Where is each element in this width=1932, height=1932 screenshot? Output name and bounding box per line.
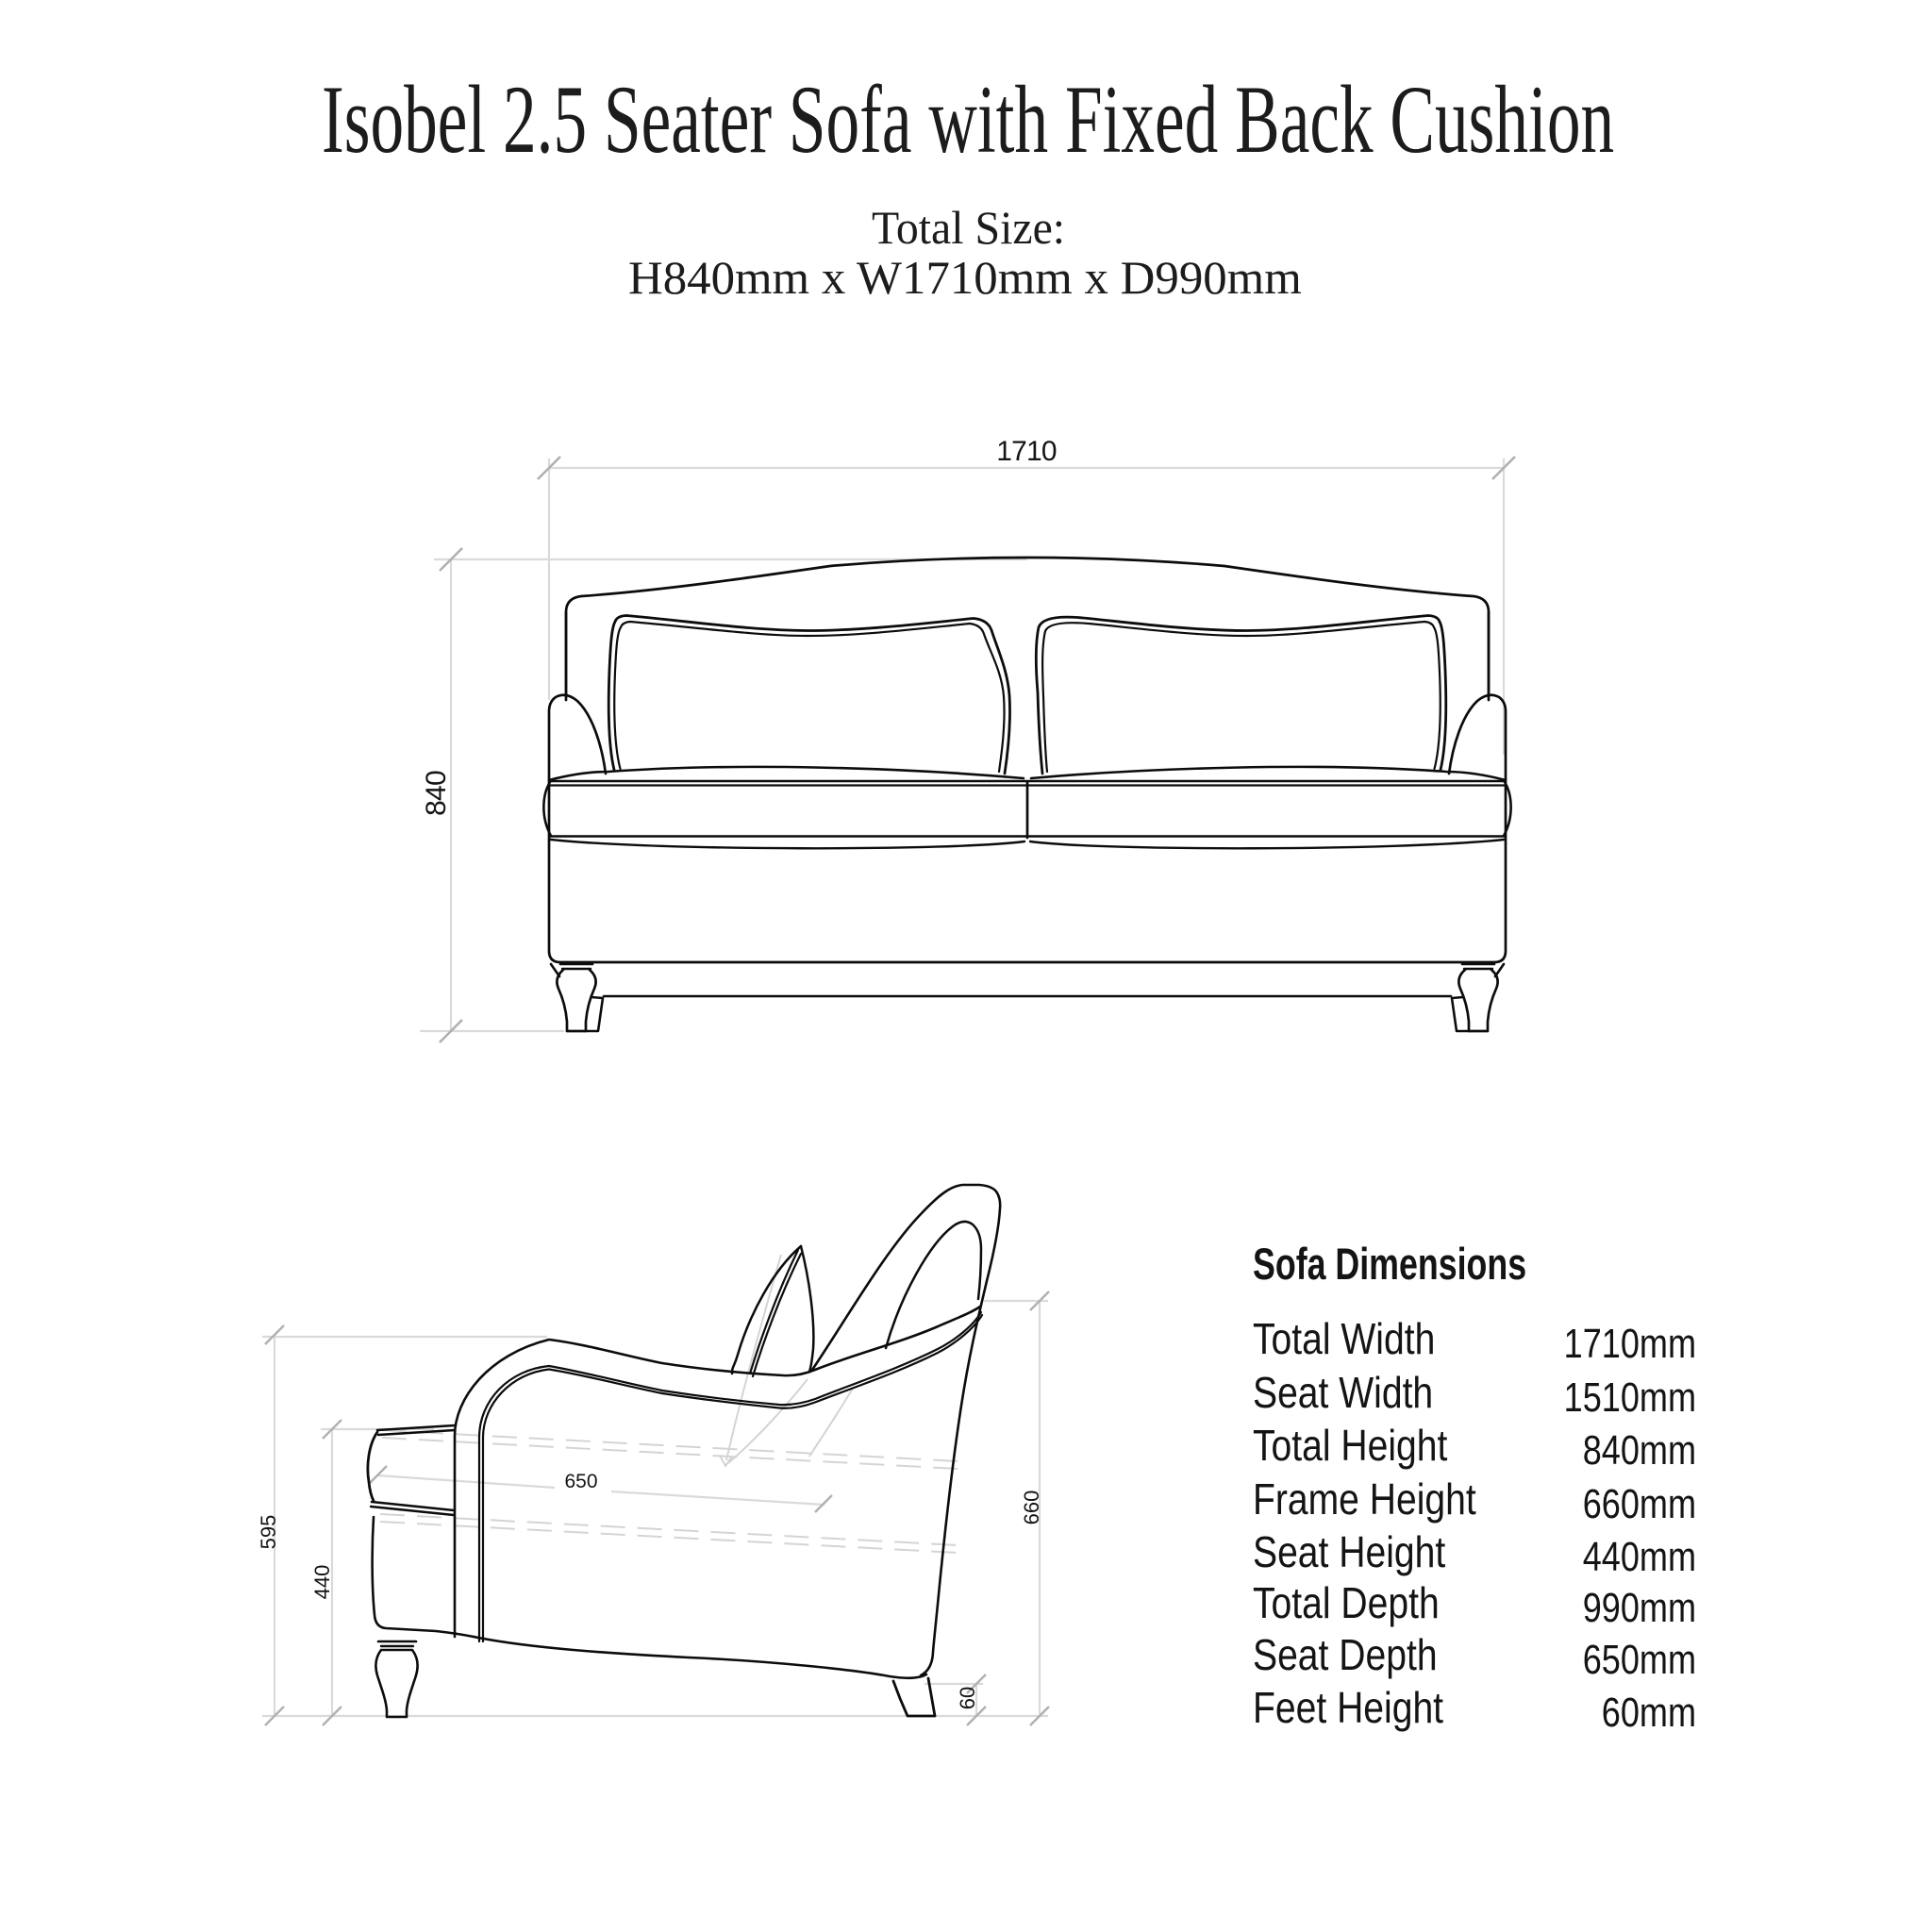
svg-text:Seat Height: Seat Height <box>1253 1528 1445 1577</box>
svg-text:440: 440 <box>310 1565 334 1600</box>
svg-text:Feet Height: Feet Height <box>1253 1684 1443 1733</box>
svg-text:650: 650 <box>564 1471 597 1492</box>
svg-text:1710: 1710 <box>996 436 1057 467</box>
svg-text:650mm: 650mm <box>1583 1637 1696 1683</box>
svg-text:Seat Depth: Seat Depth <box>1253 1631 1438 1680</box>
svg-text:440mm: 440mm <box>1583 1534 1696 1580</box>
svg-text:Seat Width: Seat Width <box>1253 1369 1433 1418</box>
svg-text:595: 595 <box>257 1515 280 1550</box>
svg-text:1710mm: 1710mm <box>1564 1321 1696 1367</box>
svg-text:660mm: 660mm <box>1583 1481 1696 1527</box>
svg-text:60: 60 <box>956 1687 979 1709</box>
svg-text:990mm: 990mm <box>1583 1585 1696 1631</box>
svg-text:Frame Height: Frame Height <box>1253 1475 1476 1524</box>
svg-text:Total Height: Total Height <box>1253 1422 1448 1471</box>
svg-text:840mm: 840mm <box>1583 1427 1696 1474</box>
svg-text:1510mm: 1510mm <box>1564 1374 1696 1421</box>
svg-text:Sofa Dimensions: Sofa Dimensions <box>1253 1239 1526 1289</box>
svg-text:60mm: 60mm <box>1602 1690 1696 1736</box>
svg-text:Total Depth: Total Depth <box>1253 1579 1440 1628</box>
svg-text:840: 840 <box>421 771 452 816</box>
svg-text:Total Width: Total Width <box>1253 1315 1435 1364</box>
svg-text:660: 660 <box>1020 1491 1043 1525</box>
